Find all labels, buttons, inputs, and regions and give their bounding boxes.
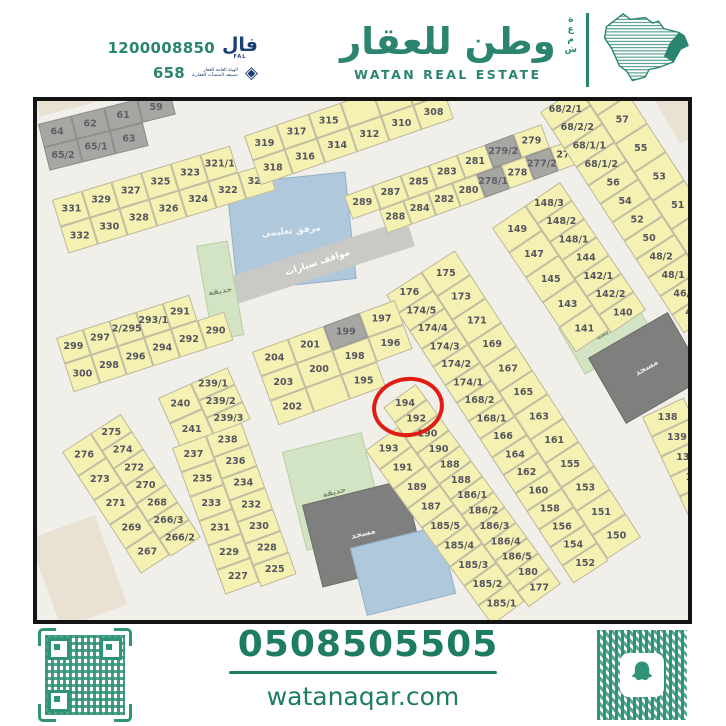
plot-number: 171 [467,315,487,326]
plot-number: 235 [192,473,212,484]
map-canvas: مرفق تعليميمواقف سياراتحديقةحديقةمسجدحدي… [37,101,688,620]
plot-number: 287 [381,187,401,198]
plot-number: 145 [541,273,561,284]
plot-number: 331 [61,203,81,214]
plot-number: 315 [319,115,339,126]
plot-number: 46/2 [685,306,692,317]
plot-number: 204 [264,352,284,363]
plot-number: 276 [74,449,94,460]
plot-number: 50 [643,232,656,243]
plot-number: 279/2 [488,146,518,157]
plot-number: 174/1 [453,377,483,388]
plot-number: 285 [409,177,429,188]
rega-text: الهيئة العامة للعقار تصنيف المنشآت العقا… [192,68,238,79]
plot-map: مرفق تعليميمواقف سياراتحديقةحديقةمسجدحدي… [33,97,692,624]
plot-number: 153 [576,483,596,494]
plot-number: 240 [170,398,190,409]
plot-number: 268 [147,497,167,508]
plot-number: 193 [378,443,398,454]
plot-number: 144 [576,252,596,263]
plot-number: 164 [505,449,525,460]
plot-number: 185/2 [472,579,502,590]
plot-number: 52 [631,214,644,225]
plot-number: 298 [99,359,119,370]
plot-number: 292 [179,334,199,345]
plot-number: 238 [218,434,238,445]
mosque-south-label: مسجد [350,526,377,542]
plot-number: 169 [482,339,502,350]
fal-logo: فال FAL [222,36,258,60]
plot-number: 198 [345,351,365,362]
plot-number: 294 [152,342,172,353]
plot-number: 135 [685,472,692,483]
plot-number: 62 [84,118,97,129]
plot-number: 148/1 [558,234,588,245]
brand-name-english: WATAN REAL ESTATE [340,67,556,82]
plot-number: 185/3 [458,559,488,570]
plot-number: 225 [265,564,285,575]
plot-number: 284 [410,203,430,214]
plot-number: 281 [465,156,485,167]
plot-number: 147 [524,249,544,260]
plot-number: 300 [72,368,92,379]
plot-number: 321/1 [204,158,234,169]
rega-logo-icon: ◈ [245,65,258,82]
plot-number: 328 [128,212,148,223]
plot-number: 293/1 [138,315,168,326]
plot-number: 196 [380,338,400,349]
plot-number: 236 [226,456,246,467]
plot-number: 279 [522,136,542,147]
plot-number: 188 [451,475,471,486]
plot-number: 316 [295,151,315,162]
plot-number: 186/2 [468,506,498,517]
plot-number: 270 [136,480,156,491]
plot-number: 278 [508,167,528,178]
plot-number: 138 [658,412,678,423]
plot-number: 65/2 [52,149,75,160]
plot-number: 56 [607,177,620,188]
plot-number: 174/3 [430,341,460,352]
plot-number: 195 [354,375,374,386]
brand-name-arabic: وطن للعقار [340,18,556,66]
license-block: 1200008850 فال FAL 658 الهيئة العامة للع… [108,36,258,82]
plot-number: 282 [434,194,454,205]
plot-number: 137 [676,452,692,463]
classification-number: 658 [153,64,185,82]
plot-number: 176 [400,287,420,298]
plot-number: 319 [254,137,274,148]
plot-number: 241 [182,424,202,435]
plot-number: 297 [90,332,110,343]
plot-number: 142/2 [595,289,625,300]
plot-number: 156 [552,521,572,532]
plot-number: 64 [51,126,64,137]
plot-number: 290 [206,325,226,336]
plot-number: 239/1 [198,378,228,389]
plot-number: 291 [170,306,190,317]
snapchat-qr-code [595,628,689,722]
plot-number: 186/4 [491,536,521,547]
plot-number: 142/1 [583,270,613,281]
footer-divider [229,671,497,674]
plot-number: 330 [99,221,119,232]
plot-number: 327 [120,185,140,196]
plot-number: 326 [158,203,178,214]
plot-number: 155 [560,459,580,470]
plot-number: 322 [217,185,237,196]
plot-number: 277/2 [527,158,557,169]
plot-number: 190 [429,444,449,455]
plot-number: 158 [540,503,560,514]
plot-number: 141 [574,323,594,334]
plot-number: 68/1/2 [585,159,618,170]
brand-divider-bar [586,13,589,87]
plot-number: 2/295 [112,324,142,335]
plot-number: 318 [263,162,283,173]
plot-number: 275 [101,427,121,438]
plot-number: 188 [440,459,460,470]
plot-number: 140 [613,307,633,318]
plot-number: 148/3 [534,198,564,209]
mosque-mid-label: مسجد [634,357,661,378]
plot-number: 197 [372,313,392,324]
plot-number: 280 [459,185,479,196]
plot-number: 149 [507,224,527,235]
plot-number: 165 [513,387,533,398]
plot-number: 161 [544,435,564,446]
plot-number: 267 [137,547,157,558]
plot-number: 272 [124,462,144,473]
plot-number: 148/2 [546,216,576,227]
plot-number: 269 [122,522,142,533]
plot-number: 186/3 [480,521,510,532]
plot-number: 289 [352,197,372,208]
plot-number: 186/5 [502,552,532,563]
website-url: watanaqar.com [228,682,498,711]
plot-number: 274 [113,445,133,456]
plot-number: 202 [282,401,302,412]
plot-number: 163 [529,411,549,422]
plot-number: 57 [616,114,629,125]
brand: وطن للعقار WATAN REAL ESTATE شمعة [340,8,701,92]
plot-number: 233 [201,497,221,508]
contact-block: 0508505505 watanaqar.com [228,624,498,711]
sand-top-right [653,97,692,144]
plot-number: 174/4 [418,323,448,334]
plot-number: 314 [327,140,347,151]
plot-number: 312 [359,129,379,140]
plot-number: 186/1 [457,490,487,501]
plot-number: 139 [667,432,687,443]
plot-number: 177 [529,582,549,593]
plot-number: 323 [180,167,200,178]
plot-number: 325 [150,176,170,187]
plot-number: 46/1 [673,288,692,299]
plot-number: 231 [210,522,230,533]
plot-number: 174/2 [441,359,471,370]
plot-number: 232 [241,499,261,510]
brand-side-word: شمعة [566,15,576,85]
school-facility-label: مرفق تعليمي [261,223,321,239]
saudi-map-logo-icon [599,8,701,92]
plot-number: 199 [336,326,356,337]
plot-number: 310 [391,118,411,129]
strip-130s: 13813913713513 [642,398,692,517]
plot-number: 168/1 [476,413,506,424]
plot-number: 299 [64,341,84,352]
strip-225-238: 237235233231229227238236234232230228225 [172,423,297,600]
plot-number: 288 [385,212,405,223]
plot-number: 185/4 [444,540,474,551]
plot-number: 187 [421,501,441,512]
plot-number: 296 [126,351,146,362]
plot-number: 175 [436,268,456,279]
plot-number: 151 [591,507,611,518]
plot-number: 271 [106,498,126,509]
plot-number: 227 [228,571,248,582]
plot-number: 180 [518,567,538,578]
plot-number: 68/1/1 [573,140,606,151]
plot-number: 53 [653,171,666,182]
plot-number: 168/2 [465,395,495,406]
plot-number: 48/2 [649,251,672,262]
plot-number: 317 [287,126,307,137]
plot-number: 167 [498,363,518,374]
plot-number: 203 [273,377,293,388]
plot-number: 191 [393,462,413,473]
plot-number: 332 [69,230,89,241]
plot-number: 162 [517,467,537,478]
plot-number: 273 [90,474,110,485]
plot-number: 152 [575,558,595,569]
plot-308: 308 [413,97,454,130]
plot-number: 237 [183,449,203,460]
plot-number: 239/2 [206,396,236,407]
plot-number: 228 [257,543,277,554]
plot-number: 65/1 [85,141,108,152]
plot-number: 55 [634,142,647,153]
plot-number: 283 [437,166,457,177]
plot-number: 185/1 [486,598,516,609]
header: 1200008850 فال FAL 658 الهيئة العامة للع… [0,0,726,97]
plot-number: 173 [451,292,471,303]
plot-number: 174/5 [406,305,436,316]
plot-number: 324 [188,194,208,205]
whatsapp-number: 0508505505 [238,624,499,665]
plot-number: 143 [557,298,577,309]
plot-number: 308 [424,106,444,117]
plot-number: 185/5 [430,521,460,532]
plot-number: 48/1 [661,269,684,280]
plot-number: 189 [407,482,427,493]
plot-number: 68/2/1 [549,103,582,114]
plot-number: 230 [249,521,269,532]
plot-number: 51 [671,199,684,210]
plot-number: 154 [563,540,583,551]
plot-number: 63 [123,133,136,144]
plot-number: 329 [91,194,111,205]
plot-number: 201 [300,339,320,350]
plot-number: 166 [493,431,513,442]
plot-number: 266/2 [165,533,195,544]
fal-license-number: 1200008850 [108,39,215,57]
flyer: 1200008850 فال FAL 658 الهيئة العامة للع… [0,0,726,726]
plot-number: 68/2/2 [561,122,594,133]
plot-number: 61 [117,110,130,121]
plot-number: 278/1 [478,176,508,187]
plot-number: 200 [309,364,329,375]
plot-number: 49 [690,228,692,239]
plot-number: 266/3 [154,515,184,526]
plot-number: 234 [233,478,253,489]
snapchat-ghost-icon [624,657,660,693]
plot-number: 59 [150,101,163,112]
website-qr-code [38,628,132,722]
plot-number: 54 [619,195,632,206]
footer: 0508505505 watanaqar.com [0,620,726,726]
plot-number: 160 [528,485,548,496]
plot-number: 150 [607,531,627,542]
plot-number: 229 [219,546,239,557]
